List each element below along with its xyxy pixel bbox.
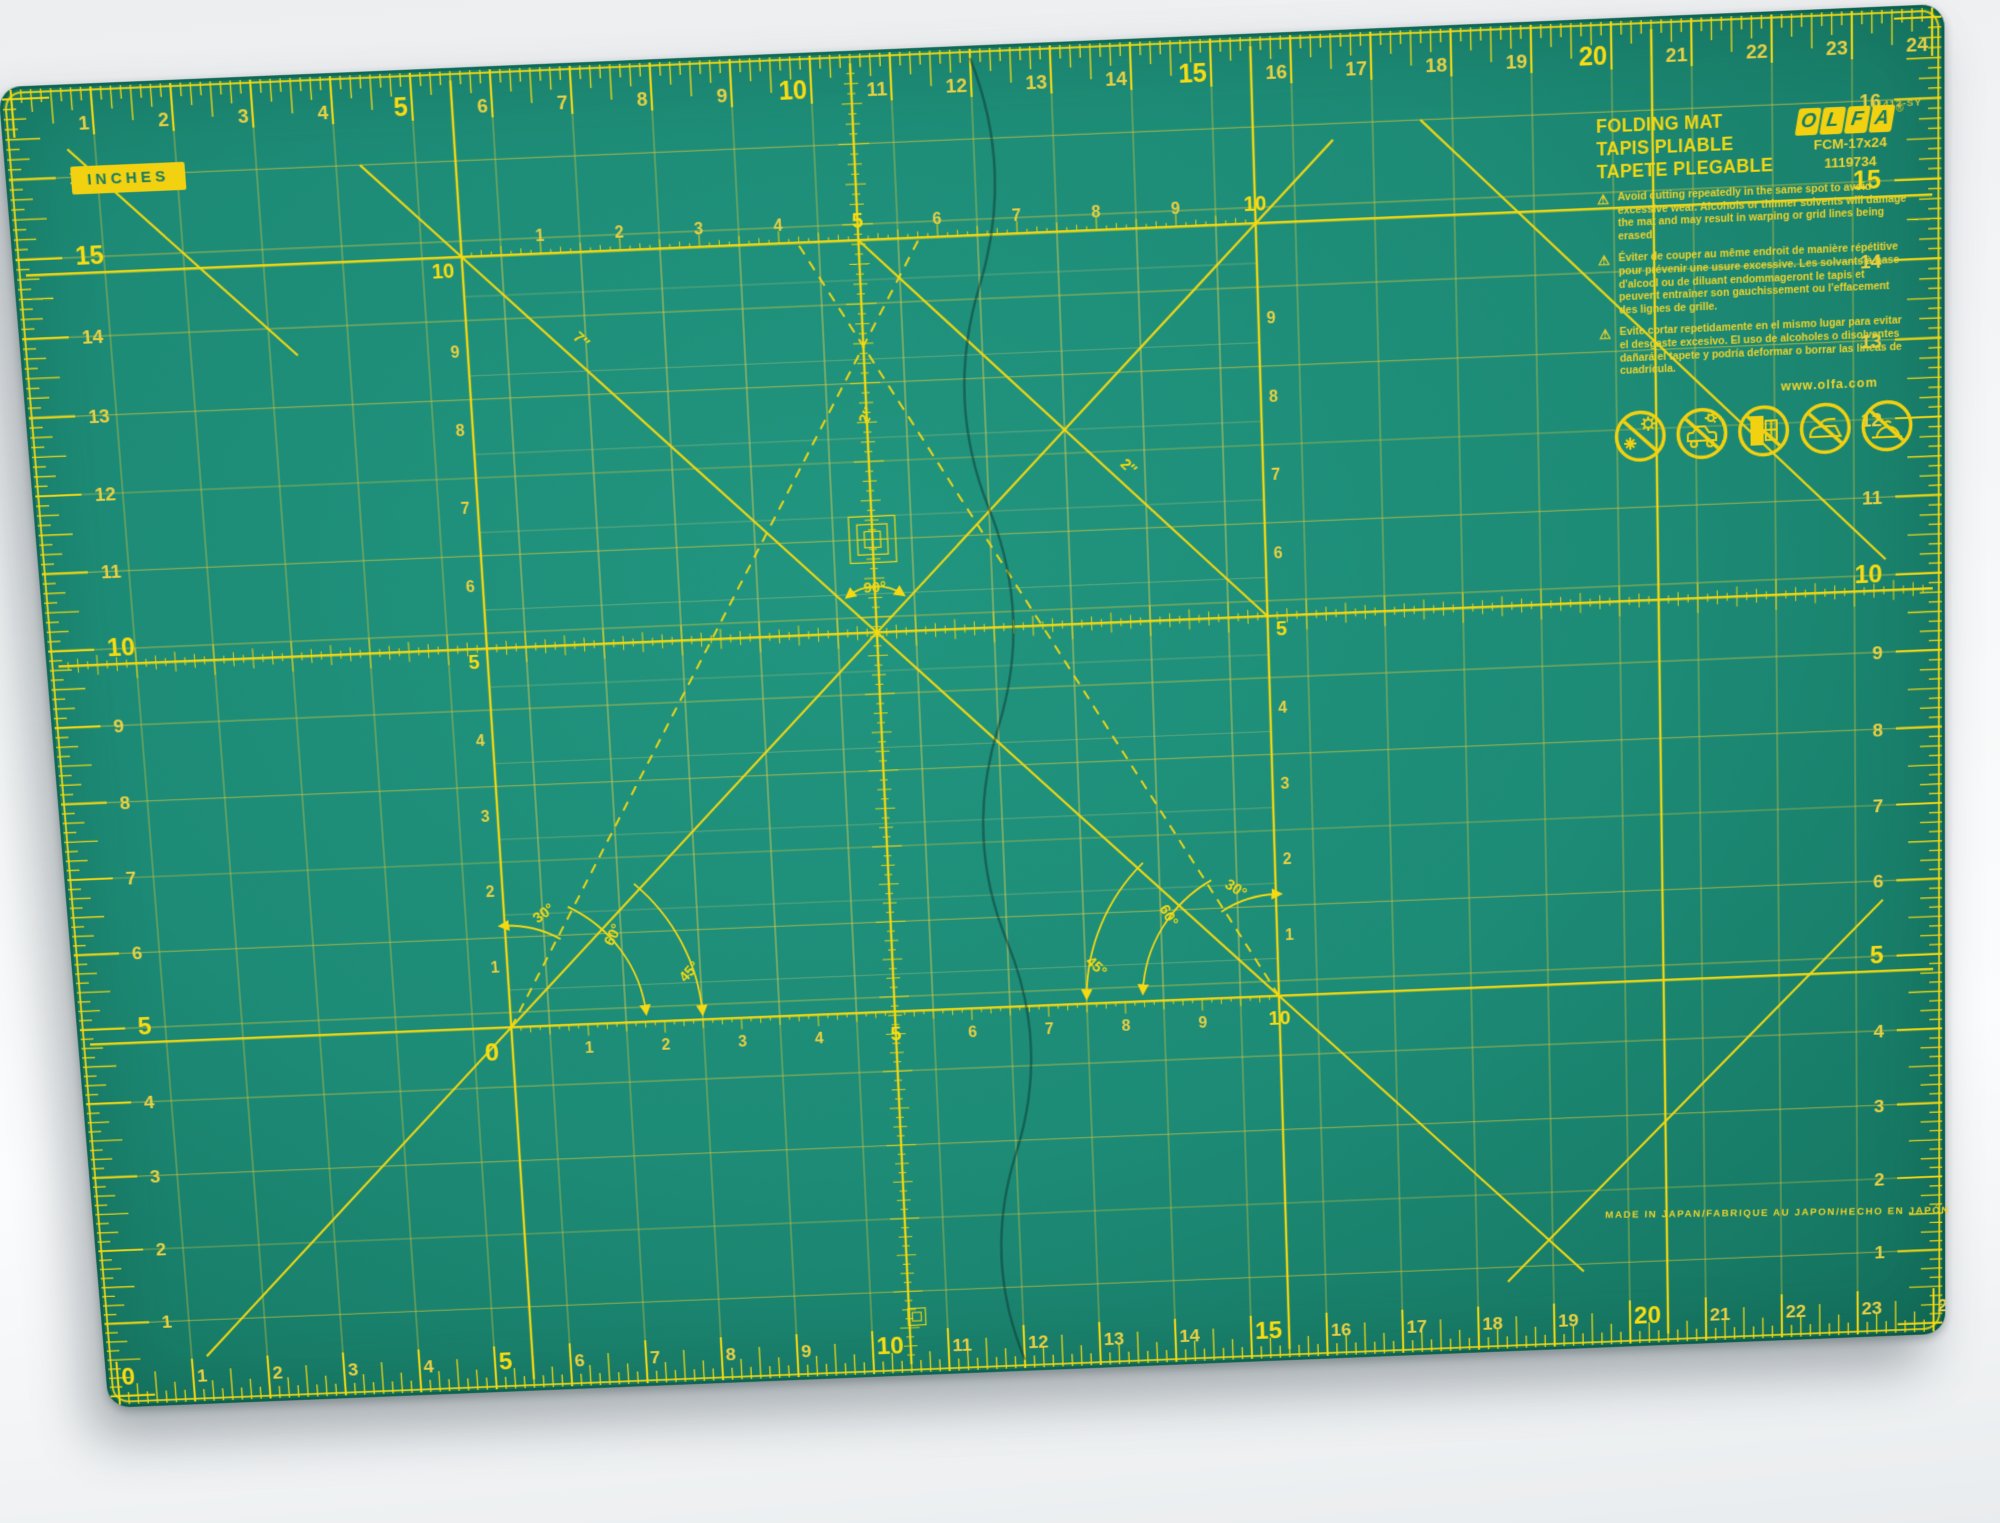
- svg-text:4: 4: [1278, 698, 1287, 716]
- no-extreme-temperature-icon: [1613, 407, 1668, 464]
- svg-text:10: 10: [431, 261, 455, 284]
- svg-text:30°: 30°: [1222, 876, 1250, 902]
- svg-text:7: 7: [460, 500, 470, 518]
- svg-text:3: 3: [738, 1033, 748, 1050]
- svg-text:16: 16: [1331, 1320, 1352, 1340]
- warning-fr: ⚠ Éviter de couper au même endroit de ma…: [1598, 241, 1908, 319]
- svg-text:6: 6: [574, 1351, 585, 1371]
- svg-text:24: 24: [1937, 1296, 1945, 1316]
- svg-text:9: 9: [1171, 200, 1181, 219]
- svg-text:8: 8: [725, 1345, 737, 1365]
- svg-text:9: 9: [1872, 643, 1883, 664]
- svg-text:14: 14: [81, 327, 104, 349]
- svg-text:6: 6: [465, 578, 475, 596]
- svg-text:6: 6: [1873, 872, 1884, 893]
- inches-label: INCHES: [70, 162, 186, 195]
- svg-text:1: 1: [78, 113, 91, 135]
- svg-text:10: 10: [106, 633, 136, 662]
- svg-text:12: 12: [94, 484, 117, 506]
- svg-text:6: 6: [476, 96, 488, 118]
- svg-text:9: 9: [450, 343, 460, 362]
- mat-perspective-wrap: 90°30°60°45°30°60°45°7″2″2″1234567891011…: [0, 4, 1945, 1408]
- svg-text:20: 20: [1578, 42, 1607, 72]
- svg-text:2: 2: [614, 223, 624, 242]
- svg-text:18: 18: [1425, 55, 1447, 78]
- svg-text:3: 3: [1280, 775, 1289, 793]
- svg-text:7: 7: [125, 869, 137, 890]
- svg-text:7: 7: [1045, 1021, 1054, 1038]
- logo-column: O L F A ® FCM-17x24 1119734: [1793, 102, 1908, 176]
- svg-text:3: 3: [694, 220, 704, 239]
- svg-text:8: 8: [119, 793, 131, 814]
- svg-text:17: 17: [1406, 1317, 1427, 1337]
- warning-triangle-icon: ⚠: [1599, 328, 1615, 380]
- svg-text:1: 1: [1285, 926, 1294, 944]
- no-sunlight-window-icon: [1736, 402, 1791, 459]
- svg-text:1: 1: [490, 959, 500, 977]
- svg-text:5: 5: [393, 93, 409, 122]
- svg-text:3: 3: [149, 1167, 161, 1187]
- svg-text:20: 20: [1634, 1302, 1661, 1329]
- svg-text:8: 8: [1872, 720, 1883, 741]
- svg-text:1: 1: [585, 1040, 595, 1057]
- photo-background: 90°30°60°45°30°60°45°7″2″2″1234567891011…: [0, 0, 2000, 1523]
- svg-text:13: 13: [88, 406, 111, 428]
- no-hot-car-icon: [1674, 405, 1729, 462]
- warning-triangle-icon: ⚠: [1598, 254, 1614, 319]
- svg-text:8: 8: [636, 89, 648, 111]
- svg-text:19: 19: [1505, 51, 1527, 74]
- svg-text:8: 8: [1121, 1018, 1130, 1035]
- svg-text:2: 2: [157, 109, 169, 131]
- cutting-mat: 90°30°60°45°30°60°45°7″2″2″1234567891011…: [0, 4, 1945, 1408]
- svg-text:18: 18: [1482, 1314, 1503, 1334]
- svg-text:19: 19: [1558, 1311, 1579, 1331]
- svg-text:4: 4: [423, 1357, 435, 1377]
- svg-text:2″: 2″: [856, 405, 878, 427]
- svg-text:5: 5: [851, 210, 863, 233]
- svg-text:5: 5: [1276, 619, 1288, 641]
- svg-text:16: 16: [1265, 62, 1287, 85]
- svg-text:2: 2: [1874, 1170, 1884, 1190]
- svg-text:4: 4: [815, 1030, 825, 1047]
- svg-text:14: 14: [1179, 1326, 1200, 1346]
- svg-text:24: 24: [1906, 34, 1928, 57]
- svg-text:3: 3: [237, 106, 249, 128]
- svg-text:90°: 90°: [863, 579, 887, 597]
- svg-text:2: 2: [1283, 851, 1292, 869]
- svg-text:11: 11: [1862, 488, 1883, 510]
- svg-text:23: 23: [1826, 38, 1848, 61]
- svg-text:22: 22: [1746, 41, 1768, 64]
- svg-text:1: 1: [161, 1313, 173, 1333]
- svg-text:4: 4: [773, 217, 783, 236]
- warning-fr-text: Éviter de couper au même endroit de mani…: [1618, 241, 1908, 318]
- svg-text:23: 23: [1861, 1299, 1882, 1319]
- item-number: 1119734: [1793, 152, 1908, 173]
- logo-tile: F: [1844, 106, 1871, 134]
- svg-text:11: 11: [866, 79, 888, 102]
- svg-text:0: 0: [121, 1364, 137, 1390]
- svg-text:15: 15: [1178, 59, 1207, 89]
- svg-text:2: 2: [272, 1364, 284, 1384]
- svg-text:11: 11: [100, 562, 122, 584]
- svg-text:14: 14: [1105, 68, 1128, 91]
- olfa-logo: O L F A ®: [1793, 104, 1908, 136]
- product-names: FOLDING MAT TAPIS PLIABLE TAPETE PLEGABL…: [1596, 107, 1787, 184]
- svg-text:6: 6: [131, 944, 143, 965]
- svg-text:2: 2: [485, 884, 495, 902]
- svg-text:9: 9: [716, 86, 728, 108]
- svg-text:3: 3: [347, 1361, 359, 1381]
- svg-text:21: 21: [1710, 1305, 1731, 1325]
- svg-text:5: 5: [468, 652, 481, 674]
- svg-text:21: 21: [1666, 44, 1688, 67]
- model-number: FCM-17x24: [1793, 133, 1908, 155]
- svg-text:9: 9: [801, 1342, 812, 1362]
- svg-text:5: 5: [498, 1349, 513, 1375]
- svg-text:13: 13: [1025, 72, 1048, 95]
- svg-text:4: 4: [317, 103, 330, 125]
- svg-text:8: 8: [1091, 203, 1101, 222]
- svg-text:7: 7: [650, 1348, 661, 1368]
- warning-es: ⚠ Evite cortar repetidamente en el mismo…: [1599, 315, 1908, 379]
- svg-text:0: 0: [484, 1038, 500, 1067]
- svg-text:8: 8: [455, 422, 465, 440]
- svg-text:2: 2: [661, 1036, 671, 1053]
- svg-text:9: 9: [113, 717, 125, 738]
- svg-text:7″: 7″: [570, 329, 593, 352]
- logo-tile: L: [1819, 107, 1846, 135]
- svg-text:8: 8: [1269, 388, 1279, 406]
- warning-triangle-icon: ⚠: [1597, 192, 1613, 245]
- svg-text:30°: 30°: [530, 900, 558, 926]
- svg-text:4: 4: [1874, 1022, 1885, 1042]
- svg-text:5: 5: [890, 1024, 902, 1045]
- svg-text:1: 1: [196, 1367, 208, 1387]
- svg-text:2″: 2″: [1117, 455, 1140, 478]
- svg-text:22: 22: [1786, 1302, 1807, 1322]
- svg-text:15: 15: [74, 241, 105, 271]
- svg-text:5: 5: [137, 1013, 153, 1040]
- svg-text:9: 9: [1266, 309, 1276, 328]
- svg-text:15: 15: [1255, 1318, 1283, 1345]
- svg-text:3: 3: [480, 808, 490, 826]
- logo-tile: O: [1794, 108, 1821, 136]
- svg-text:7: 7: [556, 92, 568, 114]
- svg-text:45°: 45°: [1082, 953, 1110, 980]
- svg-text:7: 7: [1271, 466, 1281, 484]
- svg-text:13: 13: [1103, 1330, 1124, 1350]
- svg-text:4: 4: [475, 732, 485, 750]
- svg-text:10: 10: [876, 1333, 904, 1360]
- svg-text:12: 12: [1028, 1333, 1049, 1353]
- svg-text:45°: 45°: [676, 958, 703, 985]
- warning-es-text: Evite cortar repetidamente en el mismo l…: [1619, 315, 1908, 379]
- warning-en: ⚠ Avoid cutting repeatedly in the same s…: [1597, 180, 1908, 245]
- svg-text:10: 10: [778, 76, 808, 106]
- svg-text:10: 10: [1243, 193, 1266, 216]
- svg-text:11: 11: [952, 1336, 973, 1356]
- brand-block: 01412-SY FOLDING MAT TAPIS PLIABLE TAPET…: [1596, 102, 1908, 465]
- svg-text:17: 17: [1345, 58, 1367, 81]
- svg-text:6: 6: [932, 210, 942, 229]
- warning-en-text: Avoid cutting repeatedly in the same spo…: [1617, 180, 1907, 244]
- svg-text:1: 1: [535, 227, 545, 246]
- svg-text:3: 3: [1874, 1097, 1884, 1117]
- svg-text:12: 12: [945, 75, 968, 98]
- svg-text:6: 6: [1273, 544, 1282, 562]
- svg-text:1: 1: [1874, 1244, 1885, 1264]
- svg-text:2: 2: [155, 1240, 167, 1260]
- website-url: www.olfa.com: [1600, 374, 1908, 401]
- logo-tile: A: [1868, 104, 1895, 132]
- svg-text:10: 10: [1854, 560, 1882, 589]
- no-iron-icon: [1798, 400, 1853, 457]
- svg-text:7: 7: [1012, 207, 1022, 226]
- svg-text:10: 10: [1268, 1008, 1291, 1030]
- svg-text:7: 7: [1873, 796, 1884, 817]
- brand-header: FOLDING MAT TAPIS PLIABLE TAPETE PLEGABL…: [1596, 102, 1908, 184]
- svg-text:4: 4: [143, 1093, 155, 1113]
- svg-text:6: 6: [968, 1024, 978, 1041]
- svg-text:9: 9: [1198, 1014, 1207, 1032]
- no-hot-objects-icon: [1860, 397, 1915, 454]
- svg-text:5: 5: [1870, 942, 1884, 969]
